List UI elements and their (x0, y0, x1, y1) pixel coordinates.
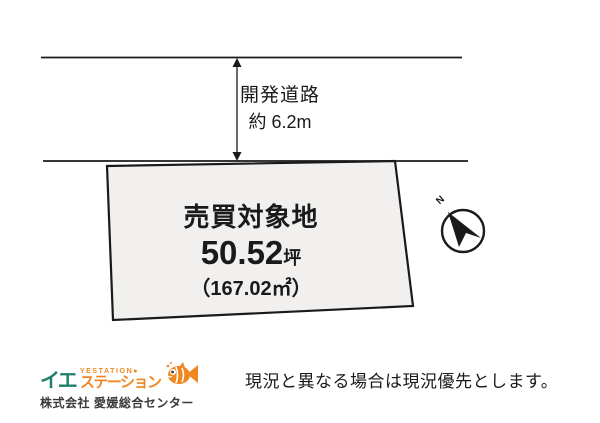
parcel-labels: 売買対象地 50.52坪 （167.02㎡） (131, 197, 371, 301)
parcel-title: 売買対象地 (131, 197, 371, 234)
road-width-label: 約 6.2m (200, 111, 360, 134)
parcel-area-tsubo-unit: 坪 (283, 248, 301, 268)
company-name: 株式会社 愛媛総合センター (40, 394, 230, 411)
parcel-area-tsubo-value: 50.52 (201, 234, 284, 271)
parcel-area-sqm: （167.02㎡） (131, 272, 371, 301)
disclaimer-text: 現況と異なる場合は現況優先とします。 (245, 367, 558, 392)
land-plot-diagram: 開発道路 約 6.2m 売買対象地 50.52坪 （167.02㎡） N イエ … (0, 0, 600, 423)
compass-icon (442, 210, 484, 252)
logo-katakana-ie: イエ (40, 371, 76, 391)
company-logo: イエ YESTATION● ステーション (40, 358, 230, 400)
logo-katakana-station: ステーション (80, 375, 161, 392)
road-name-label: 開発道路 (200, 84, 360, 108)
fish-mascot-icon (165, 360, 199, 393)
parcel-area-tsubo: 50.52坪 (131, 236, 371, 269)
road-labels: 開発道路 約 6.2m (200, 84, 360, 133)
